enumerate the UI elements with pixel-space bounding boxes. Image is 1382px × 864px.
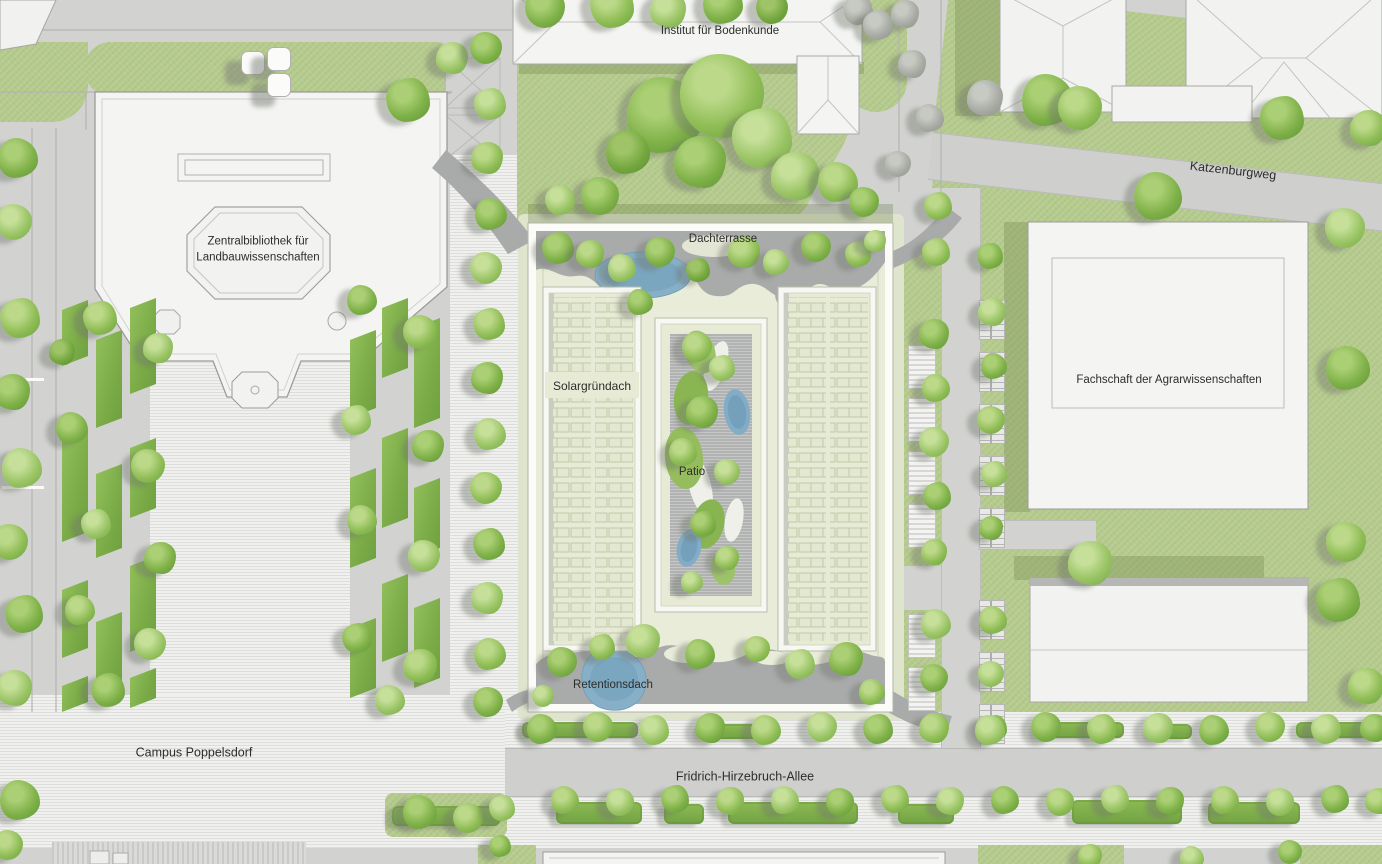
label-katzenburgweg: Katzenburgweg	[1189, 158, 1277, 185]
label-solargruendach: Solargründach	[553, 378, 631, 394]
label-retentionsdach: Retentionsdach	[573, 678, 653, 694]
label-zentralbibliothek: Zentralbibliothek für Landbauwissenschaf…	[196, 234, 319, 265]
label-campus-poppelsdorf: Campus Poppelsdorf	[136, 745, 253, 762]
site-plan: Institut für Bodenkunde Katzenburgweg Ze…	[0, 0, 1382, 864]
label-institut: Institut für Bodenkunde	[661, 24, 779, 40]
label-fachschaft: Fachschaft der Agrarwissenschaften	[1076, 373, 1261, 389]
label-allee: Fridrich-Hirzebruch-Allee	[676, 769, 814, 786]
label-dachterrasse: Dachterrasse	[689, 232, 757, 248]
label-patio: Patio	[679, 465, 705, 481]
label-layer: Institut für Bodenkunde Katzenburgweg Ze…	[0, 0, 1382, 864]
